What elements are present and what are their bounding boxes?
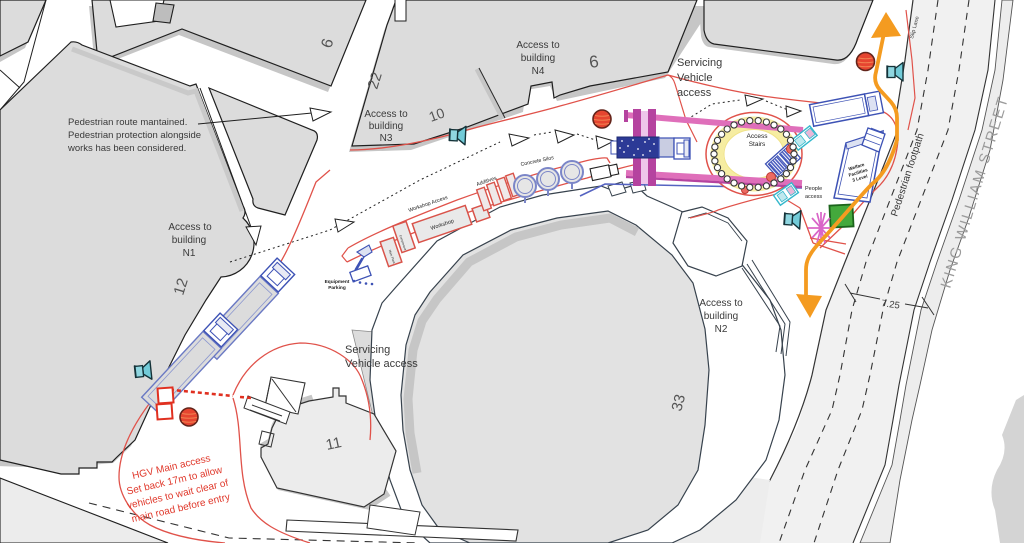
svg-text:Servicing: Servicing [677,57,722,69]
svg-text:Access to: Access to [168,222,212,233]
svg-text:Vehicle: Vehicle [677,72,712,84]
svg-text:building: building [704,311,738,322]
svg-text:access: access [805,194,822,200]
svg-text:building: building [172,235,206,246]
svg-text:N2: N2 [715,324,728,335]
svg-text:Pedestrian protection alongsi: Pedestrian protection alongside [68,130,201,141]
svg-text:Access: Access [747,133,769,140]
svg-text:Pedestrian route mantained.: Pedestrian route mantained. [68,117,187,128]
svg-text:works has been considered.: works has been considered. [67,143,186,154]
svg-text:Access to: Access to [364,109,408,120]
svg-text:Stairs: Stairs [749,141,766,148]
svg-text:People: People [805,186,822,192]
svg-text:Access to: Access to [516,40,560,51]
svg-text:Parking: Parking [328,285,346,291]
svg-text:Servicing: Servicing [345,344,390,356]
svg-text:Equipment: Equipment [325,279,350,285]
svg-text:building: building [369,121,403,132]
svg-text:N1: N1 [183,248,196,259]
svg-text:Vehicle access: Vehicle access [345,358,418,370]
svg-text:building: building [521,53,555,64]
svg-text:Access to: Access to [699,298,743,309]
svg-text:N3: N3 [380,133,393,144]
svg-text:access: access [677,87,712,99]
svg-text:N4: N4 [532,66,545,77]
